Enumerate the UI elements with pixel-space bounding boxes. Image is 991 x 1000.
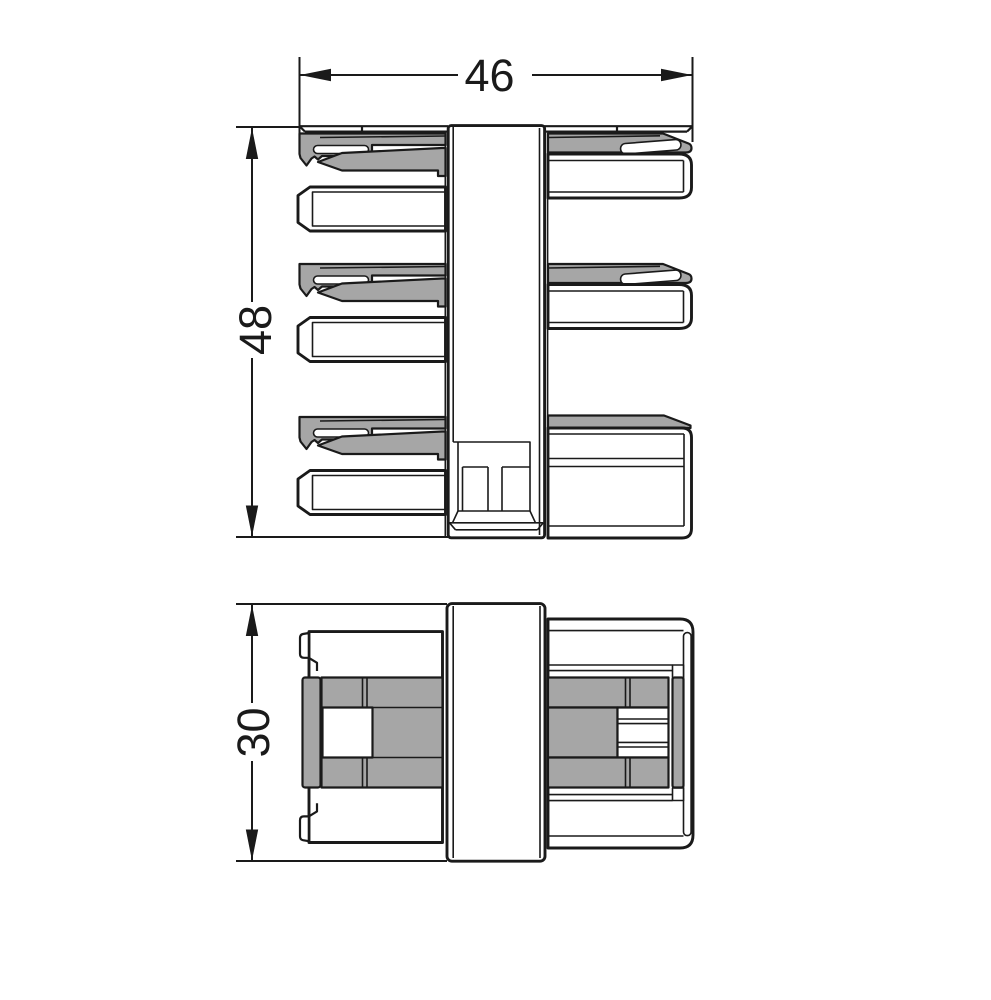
socket-grey-strip — [673, 678, 684, 788]
arrow-down-icon — [246, 830, 258, 861]
socket-keyway-window — [618, 708, 669, 758]
arrow-up-icon — [246, 605, 258, 636]
center-housing — [448, 126, 544, 538]
front-view: 30 — [228, 604, 693, 862]
socket-step-top — [673, 665, 684, 678]
arrow-left-icon — [300, 69, 331, 81]
center-housing-front-body — [447, 604, 545, 862]
top-plate-left — [300, 126, 449, 131]
technical-drawing-page: 46 48 — [0, 0, 991, 1000]
socket-contact-band-bottom — [548, 758, 669, 788]
arrow-up-icon — [246, 128, 258, 159]
socket-contact-block-mid — [548, 708, 618, 758]
plug-latch-tab-bottom — [300, 816, 309, 841]
connector-dimensional-drawing: 46 48 — [0, 0, 991, 1000]
latch-pin-row-left-2 — [298, 264, 446, 362]
plug-grey-strip — [303, 678, 321, 788]
front-view-drawing — [300, 604, 693, 862]
dim-width-value: 46 — [464, 50, 514, 101]
center-housing-front — [447, 604, 545, 862]
socket-block-right — [548, 416, 692, 539]
plug-part-left — [300, 632, 443, 843]
socket-step-bottom — [673, 788, 684, 801]
socket-row-right-1 — [548, 134, 692, 199]
latch-pin-row-left-1 — [298, 134, 446, 232]
dim-height-value: 48 — [230, 305, 281, 355]
latch-pin-row-left-3 — [298, 417, 446, 515]
socket-inner-column — [684, 633, 692, 836]
top-plate-right — [544, 126, 693, 131]
contact-pin — [298, 471, 446, 515]
socket-part-right — [548, 619, 693, 848]
arrow-down-icon — [246, 506, 258, 537]
contact-pin — [298, 318, 446, 362]
socket-block-grey-strip — [548, 416, 691, 429]
plug-latch-tab-top — [300, 633, 309, 658]
socket-row-right-2 — [548, 264, 692, 329]
dim-front-value: 30 — [228, 707, 279, 757]
arrow-right-icon — [661, 69, 692, 81]
contact-pin — [298, 187, 446, 231]
socket-block-body — [548, 428, 692, 538]
plug-keyway-window — [323, 708, 373, 758]
side-view-drawing — [298, 126, 693, 538]
side-view: 46 48 — [230, 50, 692, 538]
socket-contact-band-top — [548, 678, 669, 708]
